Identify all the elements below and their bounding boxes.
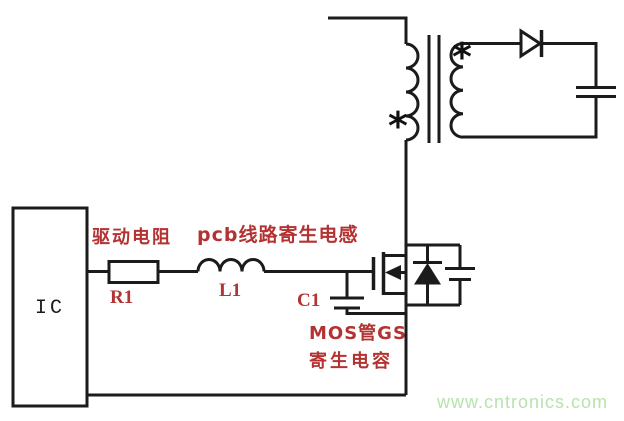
drive-resistor-label: 驱动电阻 (92, 228, 172, 248)
circuit-diagram: IC 驱动电阻 pcb线路寄生电感 R1 L1 C1 MOS管GS 寄生电容 *… (0, 0, 624, 421)
l1-label: L1 (219, 281, 241, 302)
r1-resistor-body (109, 262, 158, 283)
output-diode-triangle (521, 31, 540, 56)
primary-polarity-mark: * (388, 106, 408, 148)
mosfet-body-arrow (385, 265, 401, 280)
primary-top-wire (328, 18, 406, 44)
secondary-wire-diode-to-corner (542, 44, 596, 87)
body-diode-triangle (414, 263, 441, 285)
c1-return-wire (347, 309, 406, 314)
pcb-inductor-l1-coil (198, 260, 264, 272)
secondary-bottom-wire (463, 98, 596, 137)
r1-label: R1 (110, 288, 133, 309)
pcb-inductance-label: pcb线路寄生电感 (197, 225, 358, 246)
secondary-polarity-mark: * (452, 37, 472, 79)
c1-label: C1 (297, 291, 320, 312)
watermark-text: www.cntronics.com (437, 393, 608, 413)
mos-gs-label-line1: MOS管GS (309, 324, 407, 344)
mos-gs-label-line2: 寄生电容 (309, 352, 393, 372)
ic-label: IC (35, 298, 65, 320)
